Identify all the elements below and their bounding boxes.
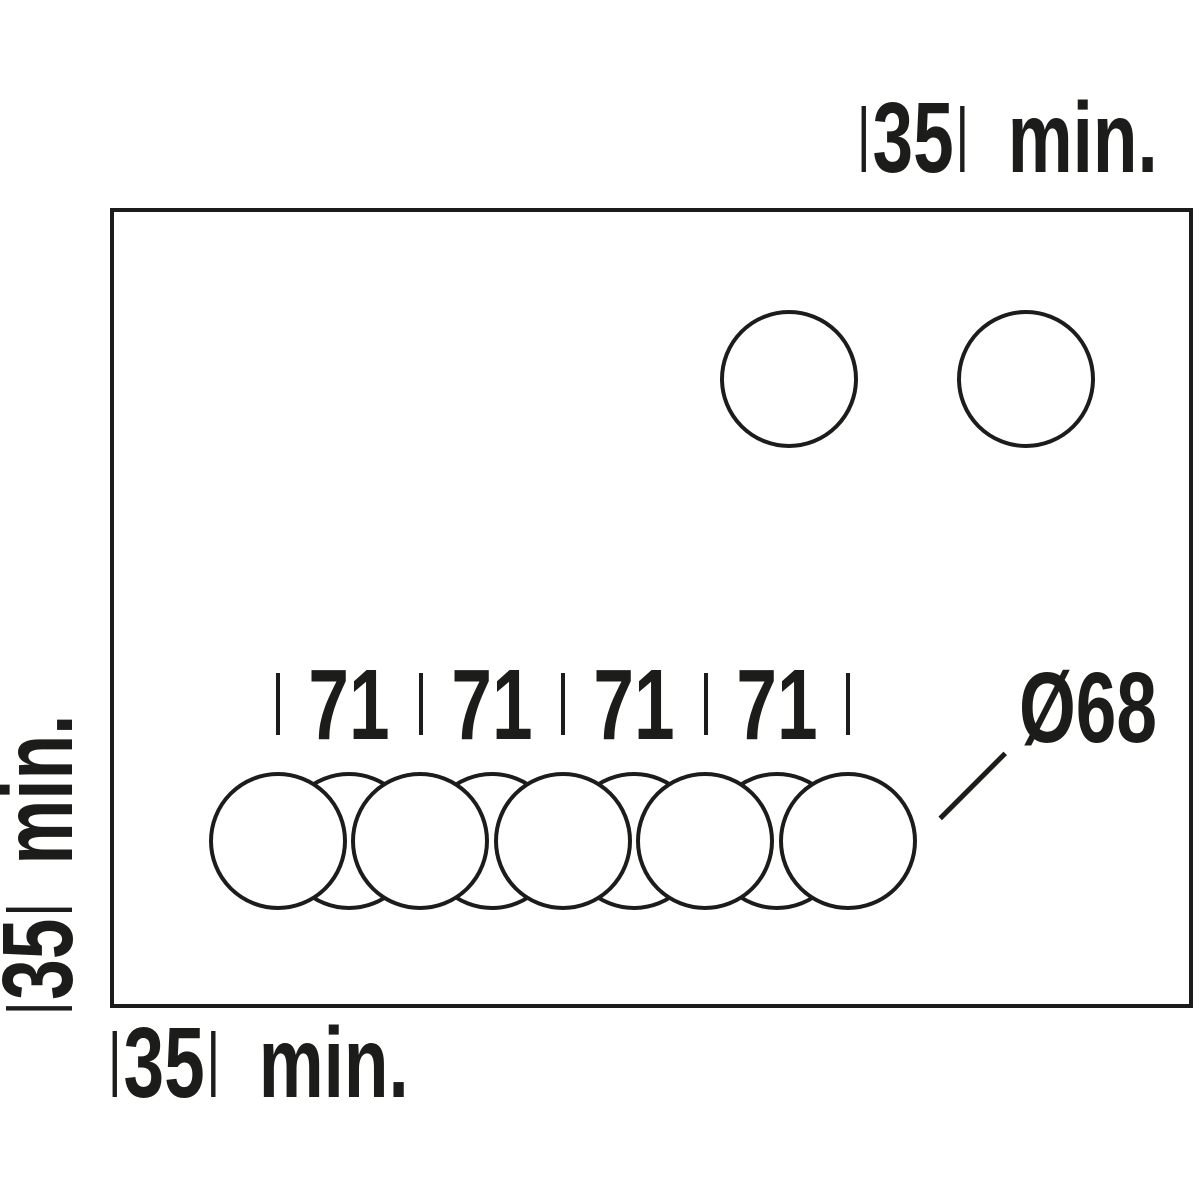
dimension-spacing-71: 71 [593,655,674,755]
dimension-tick [704,673,708,735]
dimension-spacing-71: 71 [451,655,532,755]
hole-position-circle-front [779,772,917,910]
dimension-bottom-clearance: 35min. [106,1013,409,1113]
dimension-unit: min. [1008,82,1158,194]
hole-position-circle-front [351,772,489,910]
dimension-value: 35 [0,919,94,1000]
dimension-tick [846,673,850,735]
dimension-left-clearance: 35min. [0,713,88,1020]
knob-hole-circle-right [957,310,1095,448]
dimension-value: 35 [873,82,954,194]
dimension-spacing-71: 71 [308,655,389,755]
knob-hole-circle-left [720,310,858,448]
hole-position-circle-front [494,772,632,910]
dimension-tick [561,673,565,735]
dimension-tick [276,673,280,735]
dimension-unit: min. [259,1007,409,1119]
dimension-value: 35 [124,1007,205,1119]
dimension-unit: min. [0,715,94,865]
dimension-extent-bar [862,106,866,172]
dimension-extent-bar [6,908,72,912]
installation-cutout-diagram: 35min. 71 71 71 71 Ø68 35min. 35min. [0,0,1200,1200]
dimension-extent-bar [6,1006,72,1010]
dimension-extent-bar [960,106,964,172]
dimension-extent-bar [113,1031,117,1097]
dimension-tick [419,673,423,735]
dimension-hole-diameter: Ø68 [1019,658,1157,758]
dimension-top-clearance: 35min. [855,88,1158,188]
hole-position-circle-front [209,772,347,910]
hole-position-circle-front [636,772,774,910]
dimension-spacing-71: 71 [736,655,817,755]
dimension-extent-bar [211,1031,215,1097]
